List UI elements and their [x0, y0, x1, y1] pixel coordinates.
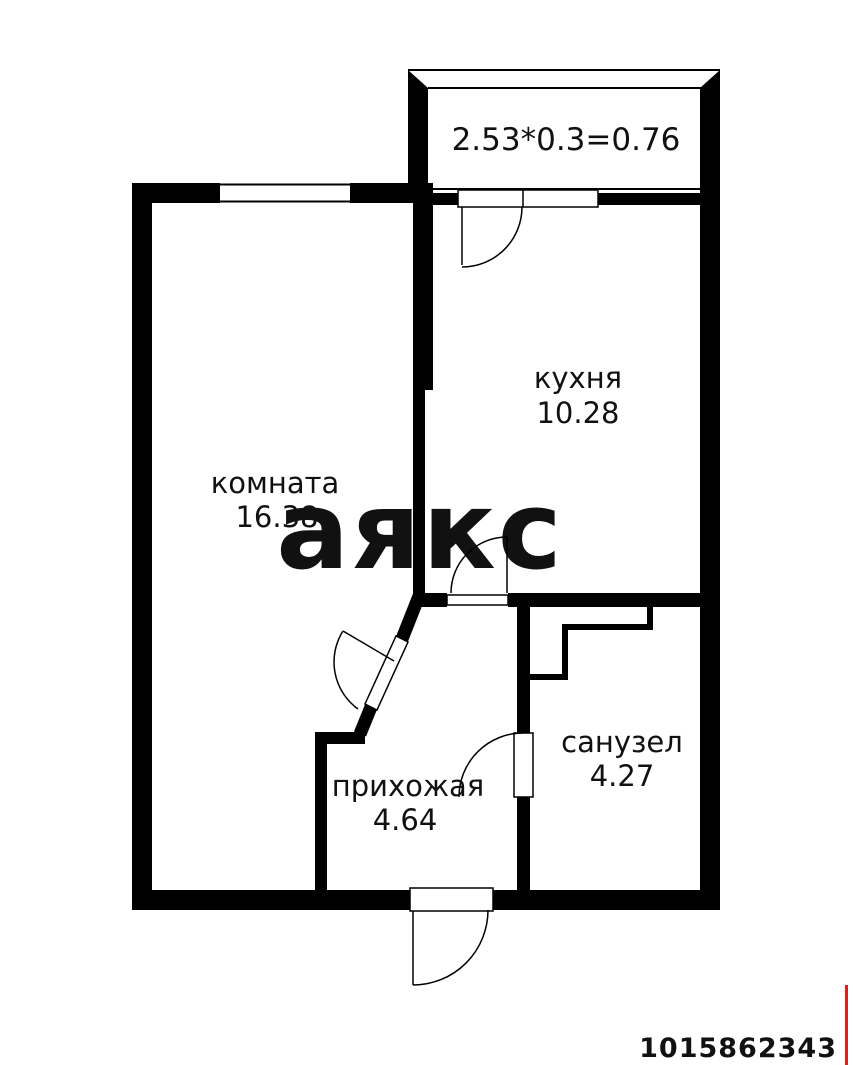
wall-partition-upper	[413, 183, 433, 390]
balcony-chamfer-left	[408, 70, 428, 88]
floor-plan-canvas: аякс	[0, 0, 853, 1065]
wall-step-vertical	[315, 732, 327, 890]
balcony-formula-label: 2.53*0.3=0.76	[452, 122, 681, 158]
wall-bathroom-left-lower	[517, 797, 530, 890]
wall-outer-left	[132, 183, 152, 910]
hallway-label: прихожая	[332, 769, 484, 803]
door-balcony	[462, 207, 522, 267]
listing-id-edge-line	[845, 985, 848, 1065]
living-room-label: комната	[211, 466, 340, 500]
wall-outer-right	[700, 88, 720, 910]
listing-id-badge: 1015862343	[639, 1033, 837, 1064]
balcony-chamfer-right	[700, 70, 720, 88]
wall-partition-lower	[413, 390, 425, 593]
kitchen-label: кухня	[534, 361, 622, 395]
wall-bathroom-left-upper	[517, 607, 530, 733]
door-entry	[410, 888, 493, 985]
living-room-area: 16.38	[235, 500, 318, 534]
door-living-room	[334, 631, 408, 710]
window-living-room	[220, 183, 350, 203]
hallway-area: 4.64	[373, 803, 438, 837]
wall-middle-right	[508, 593, 720, 607]
kitchen-area: 10.28	[536, 396, 619, 430]
wall-diagonal-lower	[360, 707, 371, 734]
window-balcony-block	[458, 190, 598, 207]
wall-diagonal-upper	[402, 596, 419, 639]
bathroom-duct-wall	[530, 607, 650, 677]
bathroom-label: санузел	[561, 725, 683, 759]
bathroom-area: 4.27	[590, 759, 655, 793]
